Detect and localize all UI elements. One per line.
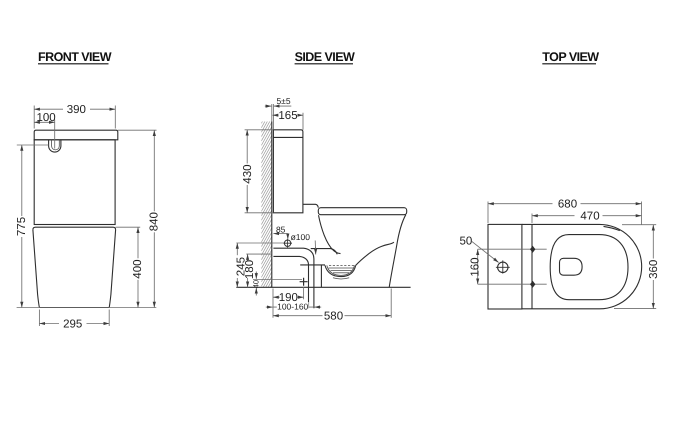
svg-text:470: 470 xyxy=(580,211,599,223)
svg-text:100-160: 100-160 xyxy=(277,301,308,311)
svg-text:85: 85 xyxy=(276,224,286,234)
svg-text:400: 400 xyxy=(132,260,144,279)
svg-text:ø100: ø100 xyxy=(291,232,311,242)
svg-text:50: 50 xyxy=(460,235,473,247)
svg-text:TOP VIEW: TOP VIEW xyxy=(542,50,599,64)
svg-text:840: 840 xyxy=(149,212,161,231)
svg-text:390: 390 xyxy=(67,104,86,116)
svg-text:580: 580 xyxy=(324,311,343,323)
svg-text:5±5: 5±5 xyxy=(276,96,290,106)
svg-text:180: 180 xyxy=(244,260,256,279)
svg-text:775: 775 xyxy=(16,217,28,236)
svg-text:680: 680 xyxy=(558,199,577,211)
svg-text:160: 160 xyxy=(470,257,482,276)
svg-text:100: 100 xyxy=(37,112,56,124)
svg-text:360: 360 xyxy=(648,260,660,279)
svg-text:295: 295 xyxy=(63,319,82,331)
svg-text:40: 40 xyxy=(251,280,260,288)
svg-text:165: 165 xyxy=(278,110,297,122)
svg-text:430: 430 xyxy=(242,165,254,184)
svg-text:FRONT VIEW: FRONT VIEW xyxy=(38,50,112,64)
svg-text:SIDE VIEW: SIDE VIEW xyxy=(295,50,355,64)
